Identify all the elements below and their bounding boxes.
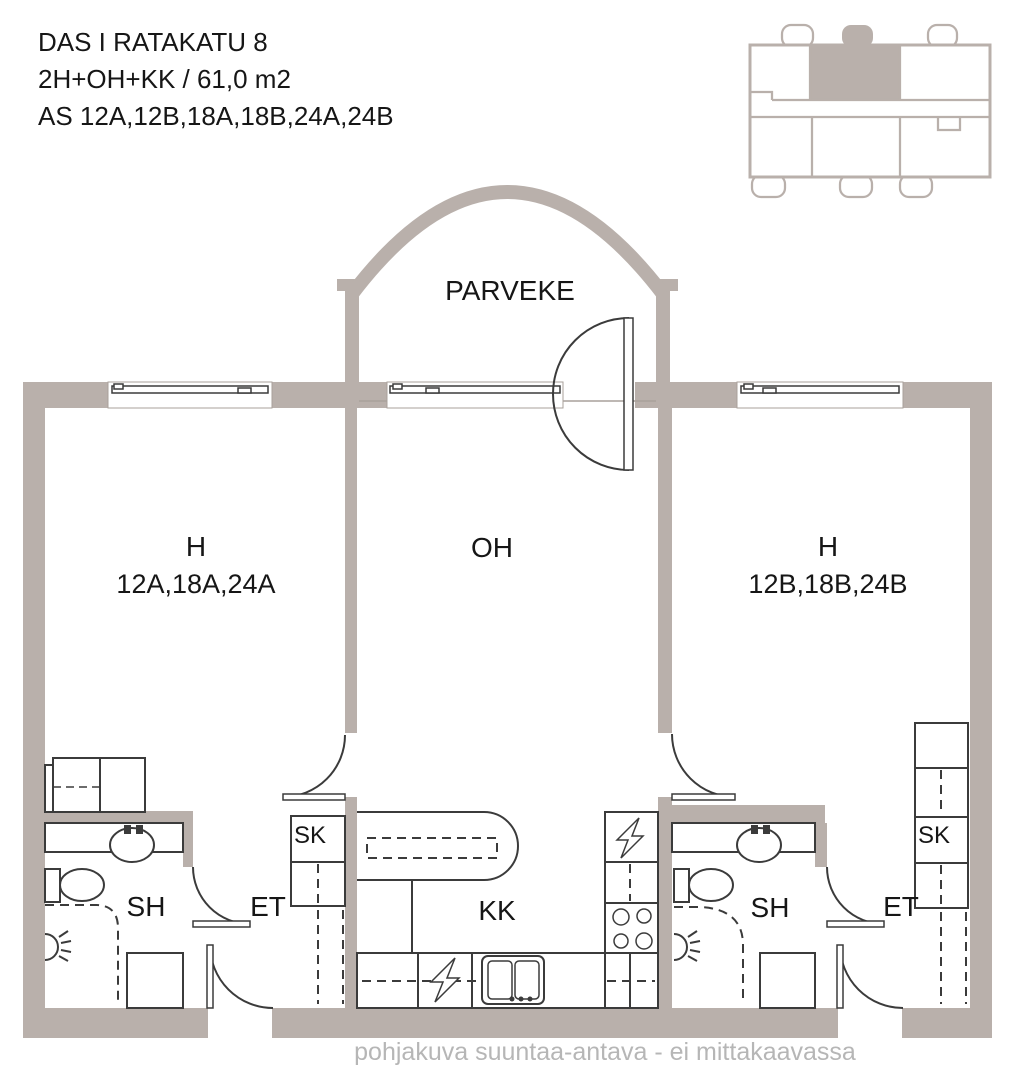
disclaimer-text: pohjakuva suuntaa-antava - ei mittakaava… — [354, 1038, 856, 1066]
layout-area-line: 2H+OH+KK / 61,0 m2 — [38, 64, 291, 94]
building-title: DAS I RATAKATU 8 — [38, 27, 268, 57]
window-right-room — [737, 382, 903, 408]
appliance-space-left — [127, 953, 183, 1008]
room-right-units: 12B,18B,24B — [748, 569, 907, 599]
sink-left — [110, 828, 154, 862]
shower-left — [45, 931, 71, 961]
door-bath-left — [193, 867, 250, 927]
keyplan-highlighted-unit — [810, 46, 900, 101]
balcony-door — [553, 318, 633, 470]
balcony-label: PARVEKE — [445, 275, 575, 306]
door-living-right — [672, 734, 735, 800]
kitchen-peninsula-counter — [357, 812, 518, 880]
door-living-left — [283, 735, 345, 800]
closet-left-label: SK — [294, 822, 326, 849]
toilet-left — [45, 869, 104, 902]
front-door-right — [837, 945, 903, 1008]
kitchen-label: KK — [478, 895, 516, 926]
title-block: DAS I RATAKATU 8 2H+OH+KK / 61,0 m2 AS 1… — [38, 27, 394, 131]
kitchen-sink — [482, 956, 544, 1004]
entry-left-label: ET — [250, 891, 286, 922]
window-balcony — [387, 382, 563, 408]
room-left-units: 12A,18A,24A — [116, 569, 275, 599]
sofa-left-room — [45, 758, 145, 812]
room-right-label: H — [818, 531, 838, 562]
bath-right-label: SH — [751, 892, 790, 923]
appliance-space-right — [760, 953, 815, 1008]
apartment-list: AS 12A,12B,18A,18B,24A,24B — [38, 101, 394, 131]
floor-plan-drawing: DAS I RATAKATU 8 2H+OH+KK / 61,0 m2 AS 1… — [0, 0, 1024, 1090]
windows — [108, 382, 903, 408]
bathroom-right — [672, 823, 815, 1008]
closet-right — [915, 723, 968, 1004]
closet-right-label: SK — [918, 822, 950, 849]
room-left-label: H — [186, 531, 206, 562]
sink-right — [737, 828, 781, 862]
front-door-left — [207, 945, 273, 1008]
bath-left-label: SH — [127, 891, 166, 922]
window-left-room — [108, 382, 272, 408]
living-room-label: OH — [471, 532, 513, 563]
key-plan — [750, 25, 990, 197]
kitchen-tall-unit — [605, 812, 658, 1008]
floor-plan-page: DAS I RATAKATU 8 2H+OH+KK / 61,0 m2 AS 1… — [0, 0, 1024, 1090]
toilet-right — [674, 869, 733, 902]
entry-right-label: ET — [883, 891, 919, 922]
shower-right — [674, 931, 700, 961]
door-bath-right — [827, 867, 884, 927]
